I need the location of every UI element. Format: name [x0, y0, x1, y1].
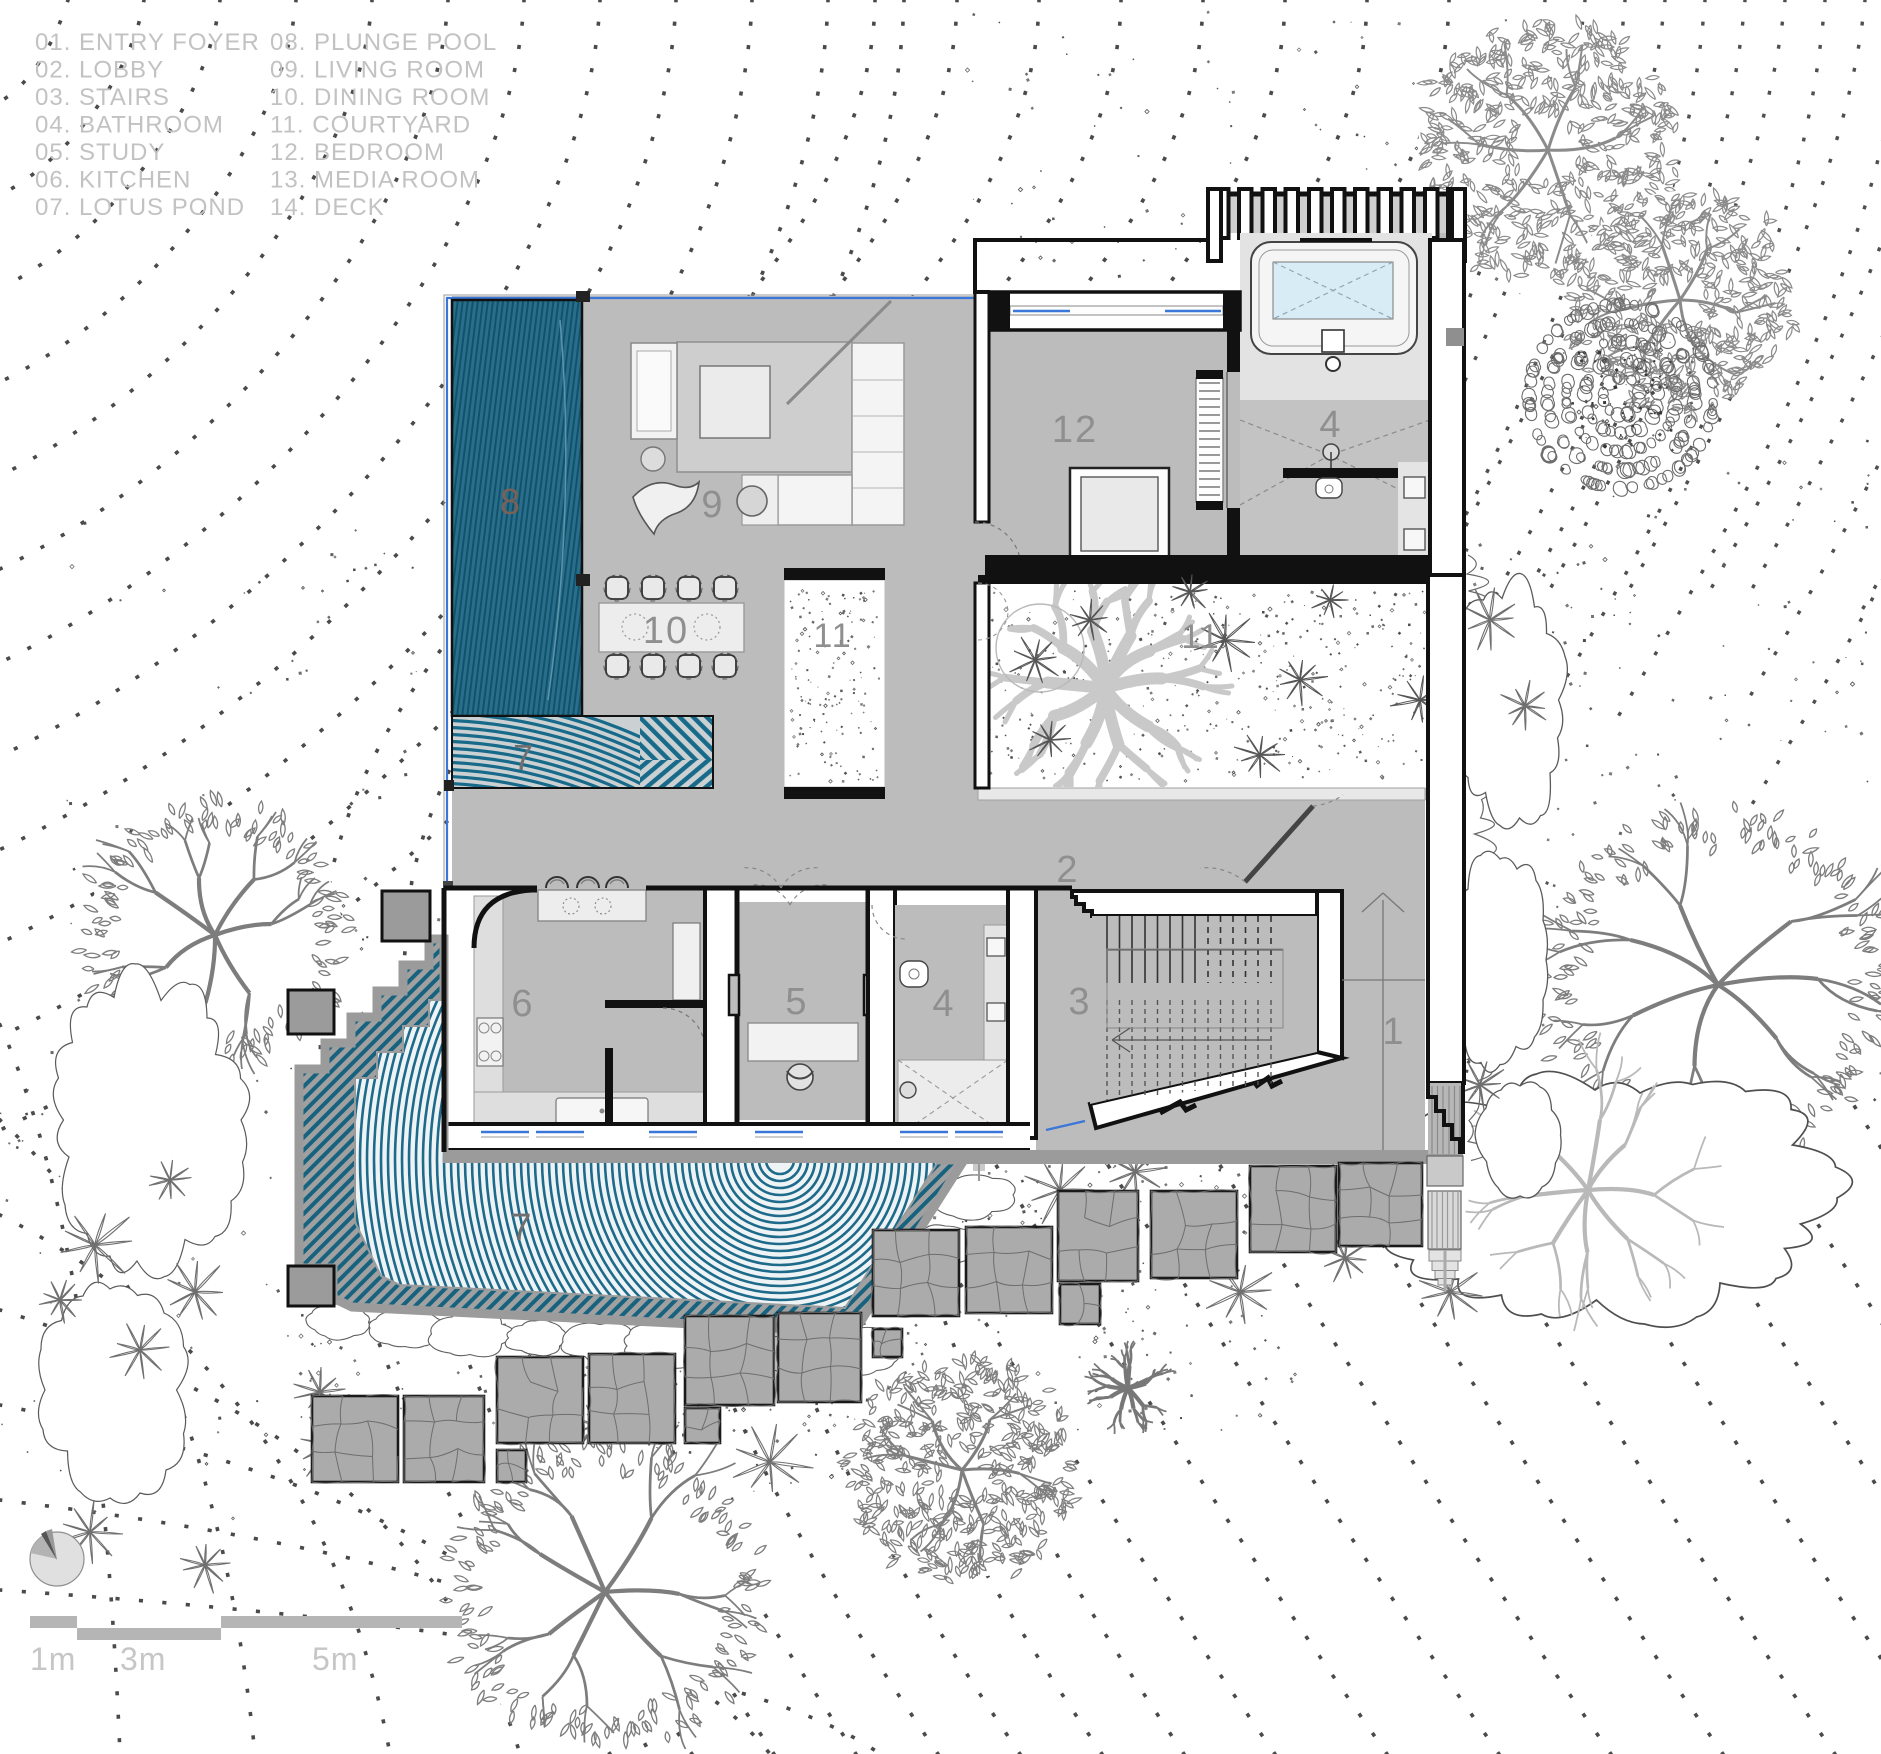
- svg-text:5: 5: [785, 981, 808, 1023]
- svg-text:8: 8: [500, 481, 522, 522]
- svg-text:9: 9: [701, 484, 724, 526]
- svg-text:01. ENTRY FOYER: 01. ENTRY FOYER: [35, 29, 260, 56]
- svg-text:2: 2: [1056, 849, 1079, 891]
- svg-text:1m: 1m: [30, 1641, 76, 1677]
- svg-text:7: 7: [510, 1207, 533, 1249]
- svg-text:7: 7: [513, 737, 535, 778]
- svg-text:12: 12: [1052, 409, 1098, 451]
- svg-text:06. KITCHEN: 06. KITCHEN: [35, 167, 191, 194]
- svg-text:09. LIVING ROOM: 09. LIVING ROOM: [270, 57, 485, 84]
- svg-text:4: 4: [1319, 404, 1342, 446]
- svg-text:3: 3: [1068, 981, 1091, 1023]
- svg-text:08. PLUNGE POOL: 08. PLUNGE POOL: [270, 29, 497, 56]
- svg-text:02. LOBBY: 02. LOBBY: [35, 57, 164, 84]
- svg-text:6: 6: [511, 983, 534, 1025]
- svg-text:11. COURTYARD: 11. COURTYARD: [270, 112, 471, 139]
- svg-text:11: 11: [813, 617, 852, 655]
- svg-text:12. BEDROOM: 12. BEDROOM: [270, 139, 445, 166]
- svg-text:1: 1: [1382, 1011, 1405, 1053]
- svg-text:04. BATHROOM: 04. BATHROOM: [35, 112, 224, 139]
- svg-text:13. MEDIA ROOM: 13. MEDIA ROOM: [270, 167, 480, 194]
- svg-text:05. STUDY: 05. STUDY: [35, 139, 165, 166]
- svg-text:3m: 3m: [120, 1641, 166, 1677]
- svg-text:14. DECK: 14. DECK: [270, 194, 385, 221]
- svg-text:07. LOTUS POND: 07. LOTUS POND: [35, 194, 245, 221]
- svg-text:5m: 5m: [312, 1641, 358, 1677]
- svg-text:11: 11: [1181, 618, 1220, 656]
- svg-text:10. DINING ROOM: 10. DINING ROOM: [270, 84, 490, 111]
- svg-text:10: 10: [643, 610, 689, 652]
- svg-text:4: 4: [932, 983, 955, 1025]
- svg-text:03. STAIRS: 03. STAIRS: [35, 84, 170, 111]
